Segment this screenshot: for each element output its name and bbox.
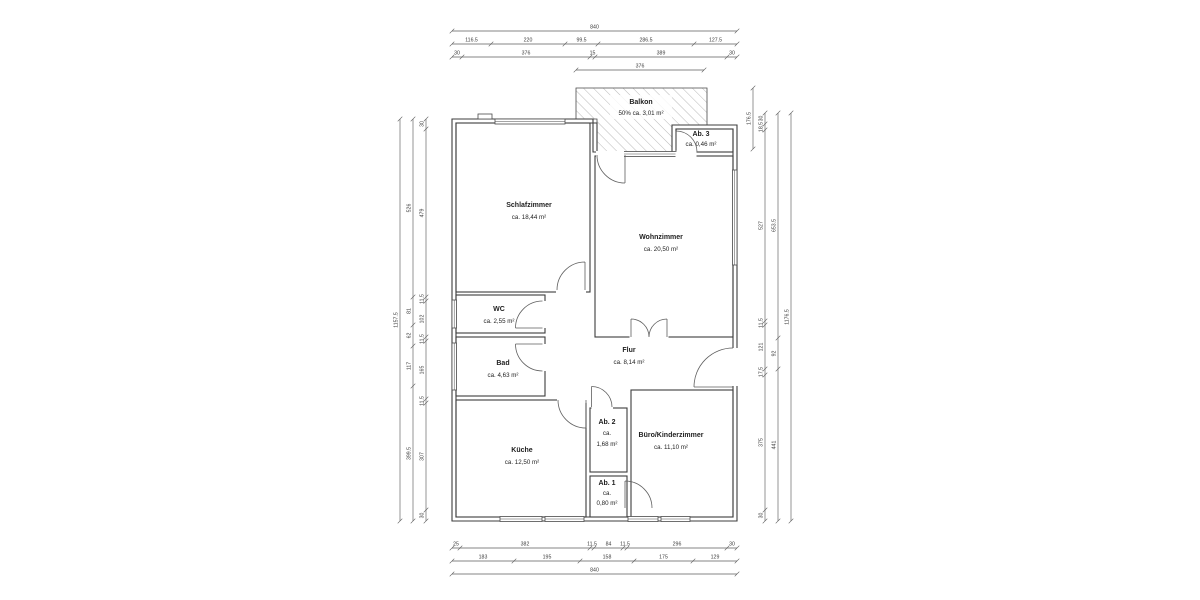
dim-label: 11.5 bbox=[420, 334, 426, 344]
room-ab2 bbox=[590, 408, 627, 472]
dim-label: 441 bbox=[772, 441, 778, 450]
dim-label: 117 bbox=[407, 362, 413, 370]
dim-label: 116.5 bbox=[465, 38, 478, 44]
dim-label: 11.5 bbox=[759, 318, 765, 328]
dim-label: 129 bbox=[711, 555, 720, 561]
flur-area: ca. 8,14 m² bbox=[614, 359, 645, 366]
dim-label: 399.5 bbox=[407, 447, 413, 460]
wohnzimmer-area: ca. 20,50 m² bbox=[644, 246, 678, 253]
dim-label: 11.5 bbox=[420, 396, 426, 406]
dim-label: 158 bbox=[603, 555, 612, 561]
dim-label: 183 bbox=[479, 555, 488, 561]
buero-name: Büro/Kinderzimmer bbox=[639, 432, 704, 439]
kueche-area: ca. 12,50 m² bbox=[505, 459, 539, 466]
dim-label: 30 bbox=[729, 542, 735, 548]
chimney-block bbox=[478, 114, 492, 119]
ab1-area1: ca. bbox=[603, 490, 612, 497]
ab3-area: ca. 0,46 m² bbox=[686, 141, 717, 148]
ab2-name: Ab. 2 bbox=[598, 419, 615, 426]
wohnzimmer-name: Wohnzimmer bbox=[639, 234, 683, 241]
floor-plan: Balkon 50% ca. 3,01 m² Ab. 3 ca. 0,46 m²… bbox=[0, 0, 1200, 600]
dim-label: 220 bbox=[524, 38, 533, 44]
dim-label: 382 bbox=[521, 542, 530, 548]
dim-label: 376 bbox=[522, 51, 531, 57]
ab1-area2: 0,80 m² bbox=[597, 500, 618, 507]
buero-area: ca. 11,10 m² bbox=[654, 444, 688, 451]
dim-label: 286.5 bbox=[640, 38, 653, 44]
schlafzimmer-area: ca. 18,44 m² bbox=[512, 214, 546, 221]
bad-name: Bad bbox=[496, 360, 509, 367]
dim-label: 30 bbox=[759, 513, 765, 519]
bad-area: ca. 4,63 m² bbox=[488, 372, 519, 379]
balkon-name: Balkon bbox=[629, 99, 652, 106]
wc-area: ca. 2,55 m² bbox=[484, 318, 515, 325]
dim-label: 30 bbox=[729, 51, 735, 57]
dim-label: 92 bbox=[772, 351, 778, 357]
room-wc bbox=[456, 295, 545, 333]
dim-label: 30 bbox=[420, 513, 426, 519]
schlafzimmer-name: Schlafzimmer bbox=[506, 202, 552, 209]
dim-label: 653.5 bbox=[772, 219, 778, 232]
ab2-area1: ca. bbox=[603, 430, 612, 437]
dim-label: 527 bbox=[759, 221, 765, 230]
kueche-name: Küche bbox=[511, 447, 533, 454]
dim-label: 165 bbox=[420, 366, 426, 375]
dim-label: 526 bbox=[407, 204, 413, 213]
dim-label: 127.5 bbox=[709, 38, 722, 44]
dim-label: 81 bbox=[407, 308, 413, 314]
dim-label: 99.5 bbox=[576, 38, 586, 44]
dim-label: 18.5 bbox=[759, 122, 765, 132]
dim-label: 30 bbox=[454, 51, 460, 57]
dim-label: 840 bbox=[590, 25, 599, 31]
dim-label: 479 bbox=[420, 209, 426, 218]
flur-name: Flur bbox=[622, 347, 635, 354]
dim-label: 1176.5 bbox=[785, 309, 791, 325]
dim-label: 25 bbox=[453, 542, 459, 548]
dim-label: 17.5 bbox=[759, 367, 765, 377]
dim-label: 376 bbox=[636, 64, 645, 70]
dim-label: 375 bbox=[759, 438, 765, 447]
dim-label: 11.5 bbox=[420, 294, 426, 304]
dim-label: 30 bbox=[420, 121, 426, 127]
dim-label: 121 bbox=[759, 343, 765, 352]
ab3-name: Ab. 3 bbox=[692, 131, 709, 138]
dim-label: 11.5 bbox=[620, 542, 630, 548]
dim-label: 84 bbox=[606, 542, 612, 548]
dim-label: 30 bbox=[759, 116, 765, 122]
wc-name: WC bbox=[493, 306, 505, 313]
dim-label: 307 bbox=[420, 452, 426, 461]
dim-label: 296 bbox=[673, 542, 682, 548]
dim-label: 176.5 bbox=[747, 112, 753, 125]
dim-label: 15 bbox=[590, 51, 596, 57]
ab1-name: Ab. 1 bbox=[598, 480, 615, 487]
dim-label: 11.5 bbox=[587, 542, 597, 548]
dim-label: 195 bbox=[543, 555, 552, 561]
room-buero bbox=[631, 390, 733, 517]
dim-label: 175 bbox=[659, 555, 668, 561]
dim-label: 389 bbox=[657, 51, 666, 57]
dim-label: 840 bbox=[590, 568, 599, 574]
dim-label: 1157.5 bbox=[394, 312, 400, 328]
dim-label: 102 bbox=[420, 315, 426, 324]
balkon-area: 50% ca. 3,01 m² bbox=[618, 110, 663, 117]
dim-label: 62 bbox=[407, 333, 413, 339]
ab2-area2: 1,68 m² bbox=[597, 441, 618, 448]
